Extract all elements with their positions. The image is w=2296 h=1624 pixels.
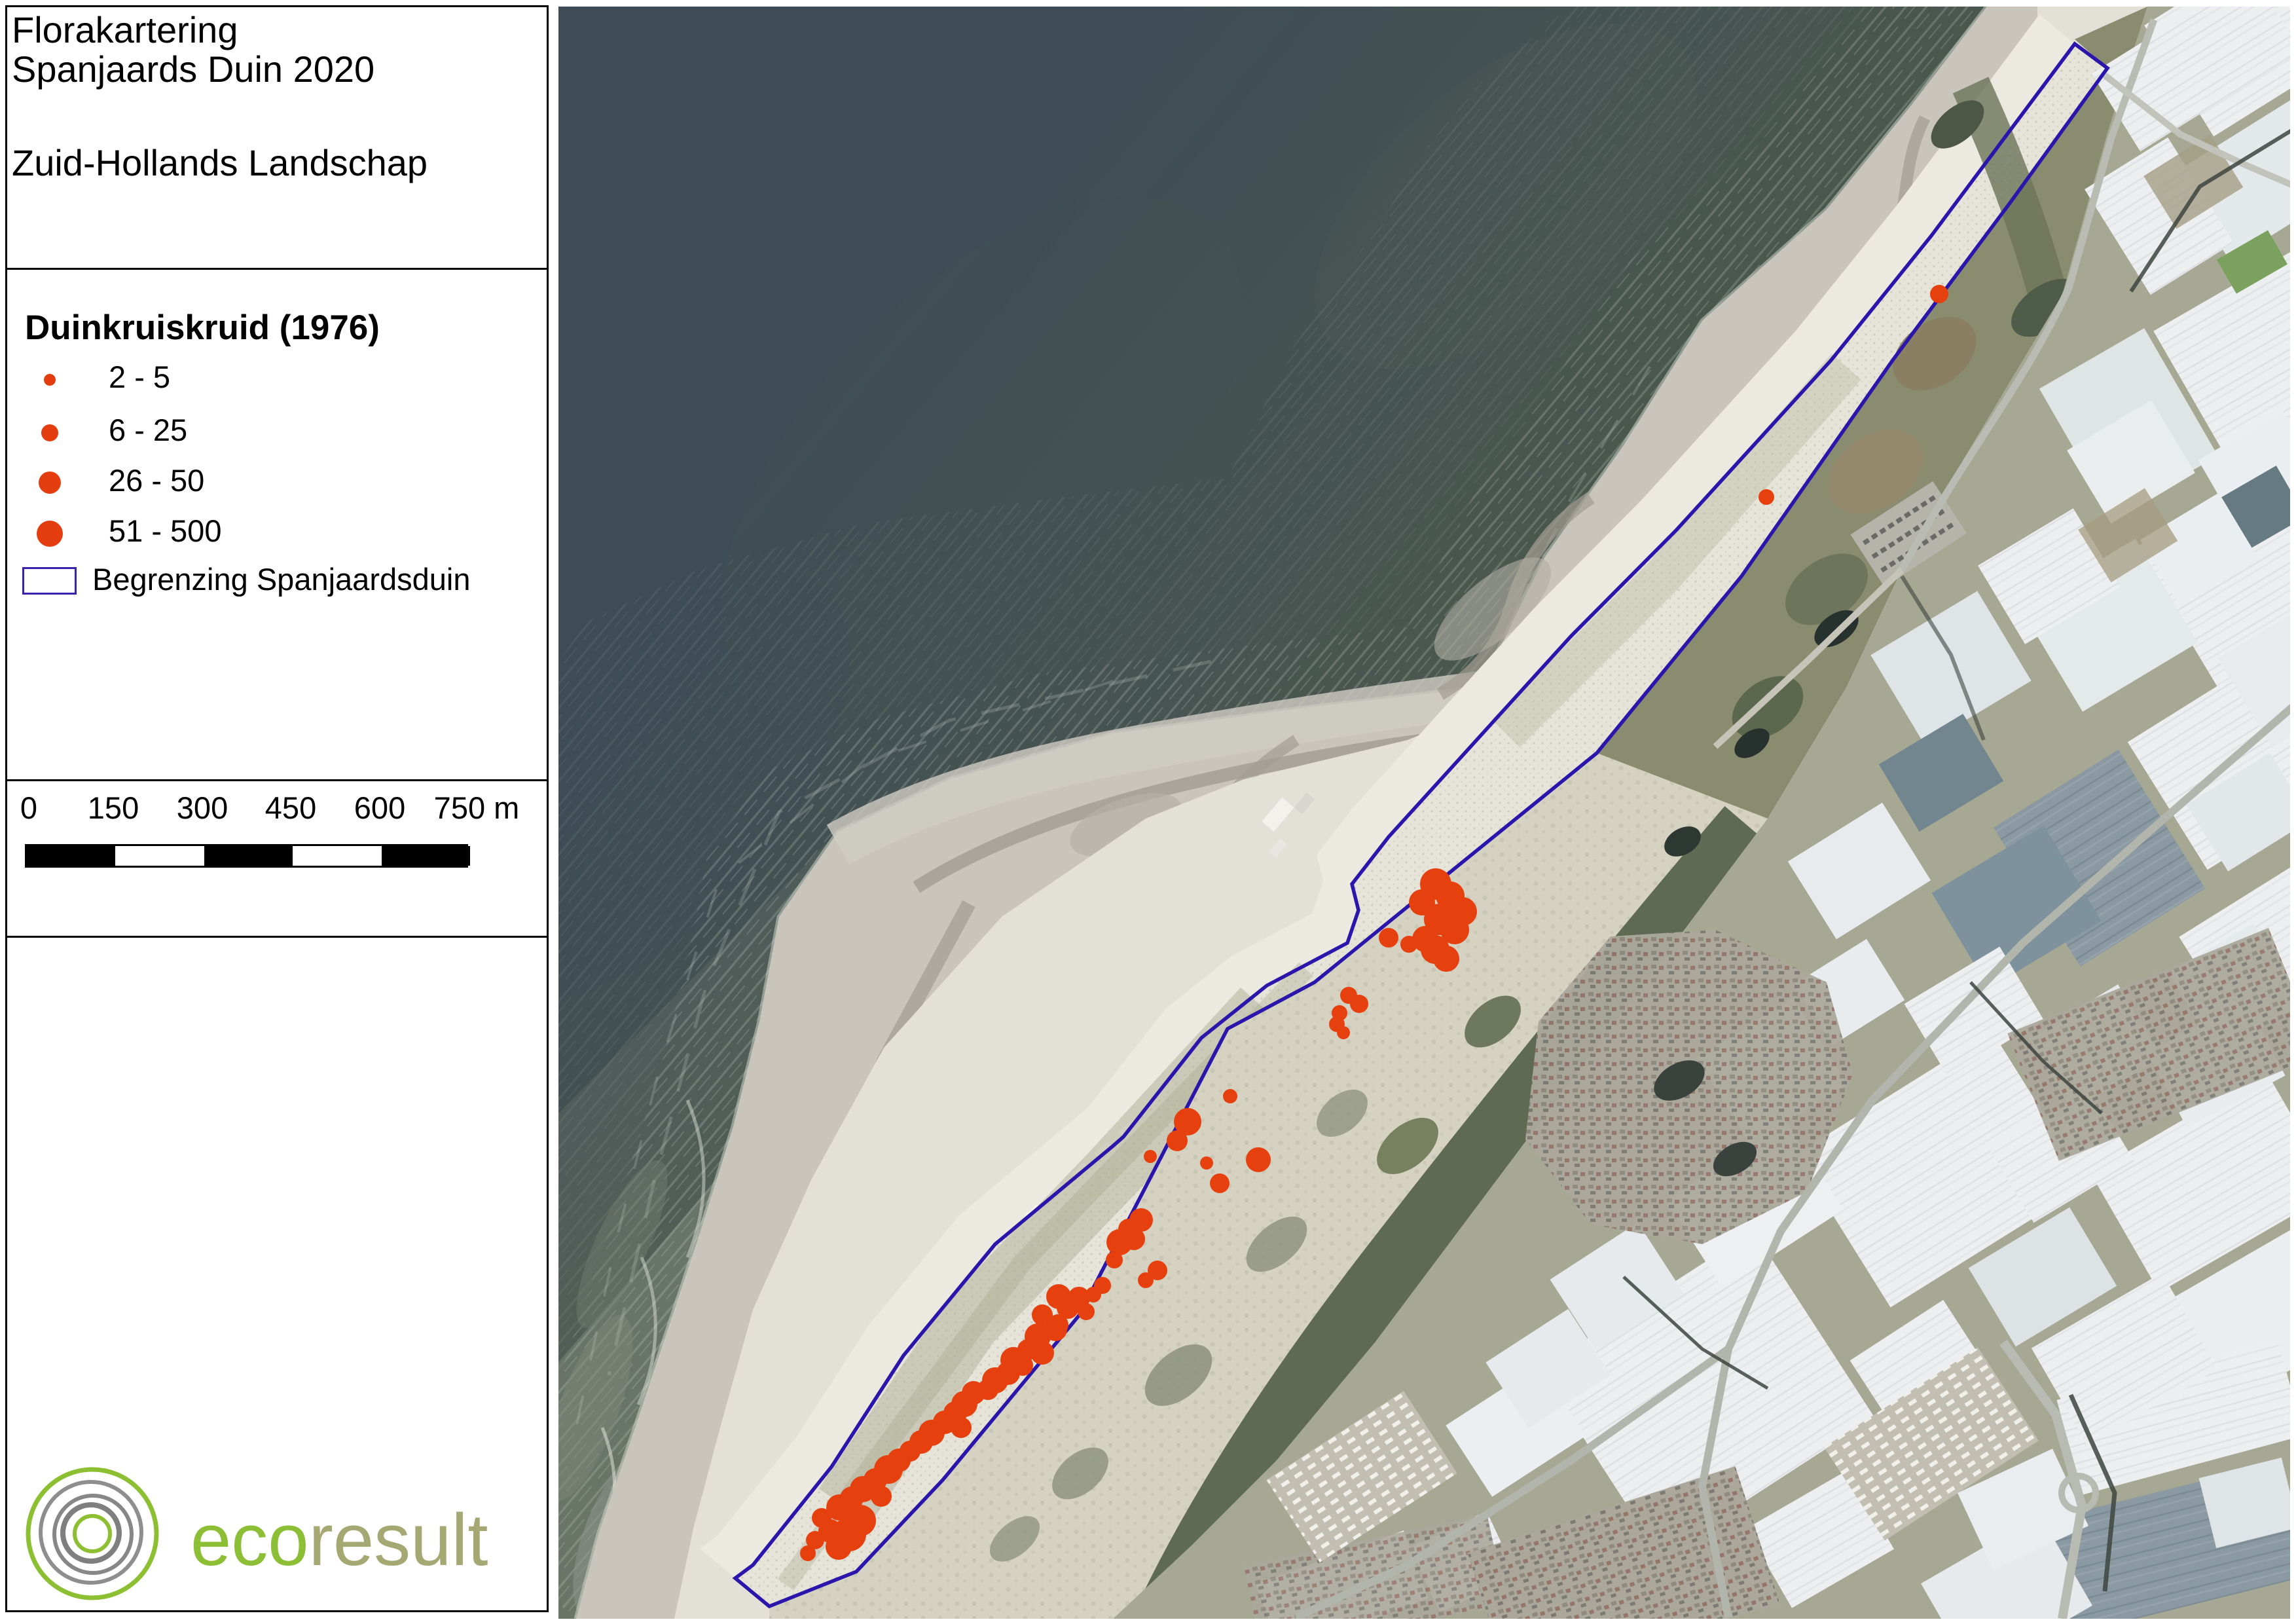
- svg-text:ecoresult: ecoresult: [191, 1499, 488, 1581]
